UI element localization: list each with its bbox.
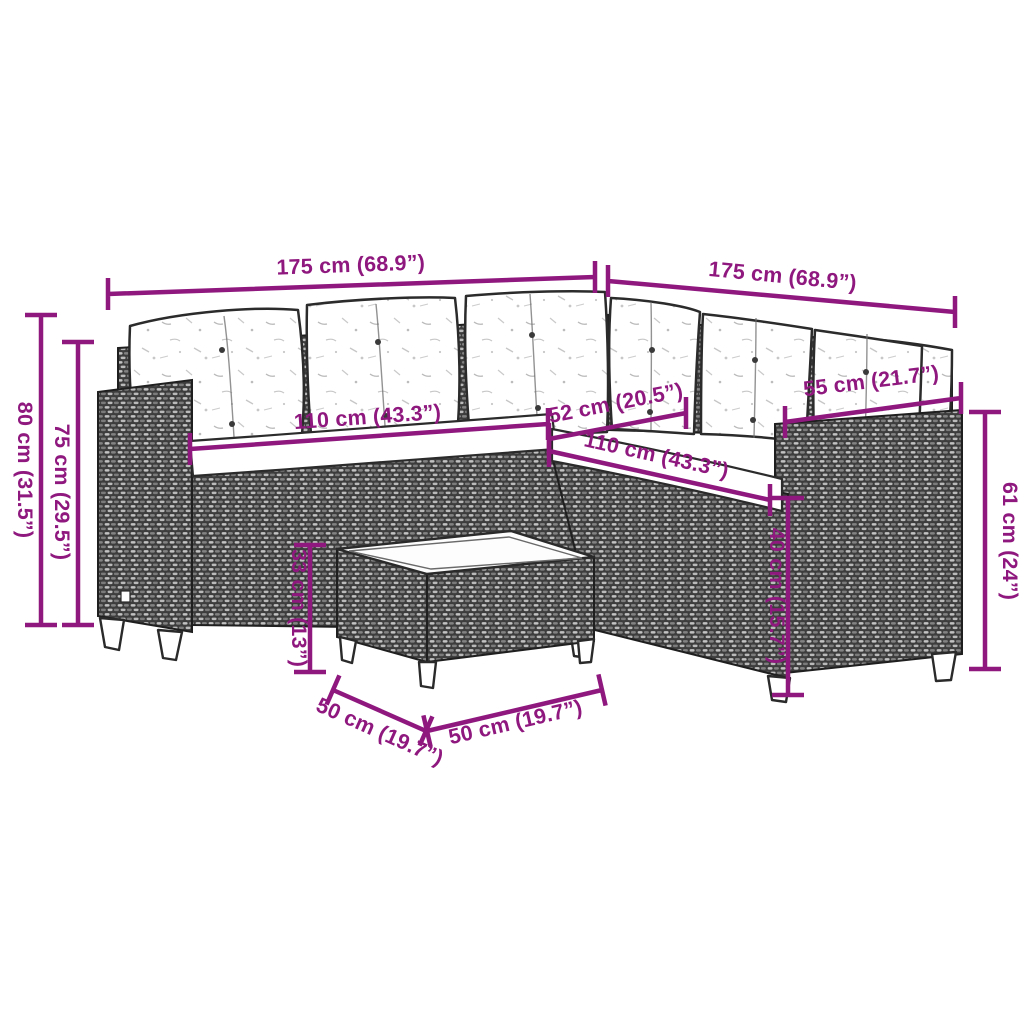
coffee-table xyxy=(337,531,594,688)
dimension-label-seat-height: 40 cm (15.7”) xyxy=(765,528,789,664)
table-foot xyxy=(578,639,594,663)
product-dimension-diagram: 175 cm (68.9”) 175 cm (68.9”) 80 cm (31.… xyxy=(0,0,1024,1024)
armrest-left xyxy=(98,380,192,632)
armrest-right xyxy=(775,410,962,674)
dimension-line-armrest-height xyxy=(969,412,1001,669)
sofa-dimension-illustration: 175 cm (68.9”) 175 cm (68.9”) 80 cm (31.… xyxy=(0,0,1024,1024)
brand-tag xyxy=(121,591,130,602)
sofa-foot xyxy=(100,618,124,650)
dimension-label-back-height: 75 cm (29.5”) xyxy=(50,424,74,560)
table-side-right xyxy=(427,557,594,662)
dimension-label-armrest-height: 61 cm (24”) xyxy=(998,482,1022,600)
dimension-label-total-height: 80 cm (31.5”) xyxy=(13,402,37,538)
dimension-label-table-height: 33 cm (13”) xyxy=(287,549,311,667)
sofa-foot xyxy=(932,652,956,681)
table-foot xyxy=(340,637,356,663)
dimension-label-table-width: 50 cm (19.7”) xyxy=(446,695,584,749)
table-foot xyxy=(419,662,436,688)
sofa-foot xyxy=(158,630,182,660)
dimension-label-width-left: 175 cm (68.9”) xyxy=(276,250,425,279)
dimension-label-width-right: 175 cm (68.9”) xyxy=(708,257,858,295)
